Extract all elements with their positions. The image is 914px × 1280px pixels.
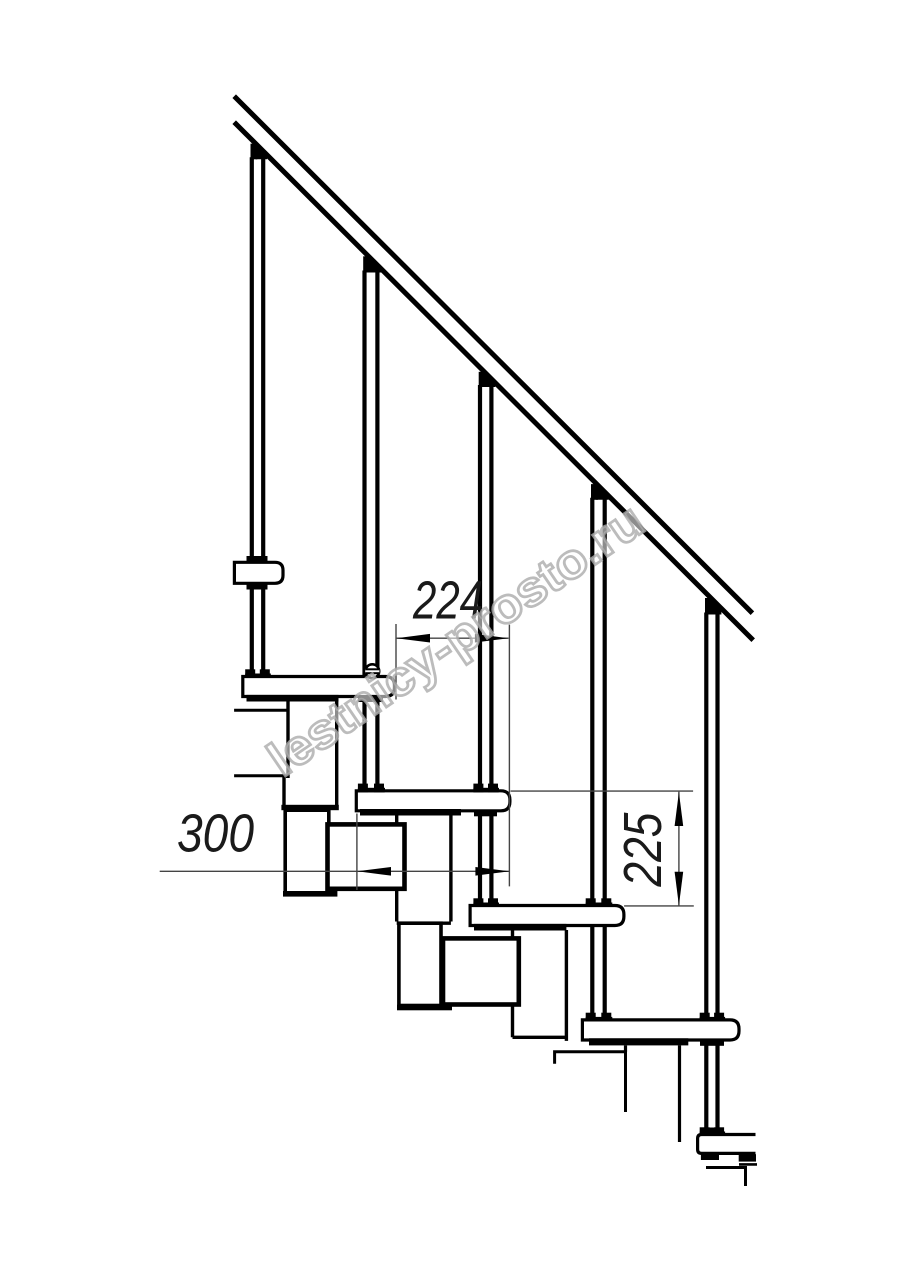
svg-text:300: 300 <box>177 804 254 864</box>
svg-text:225: 225 <box>613 812 673 888</box>
